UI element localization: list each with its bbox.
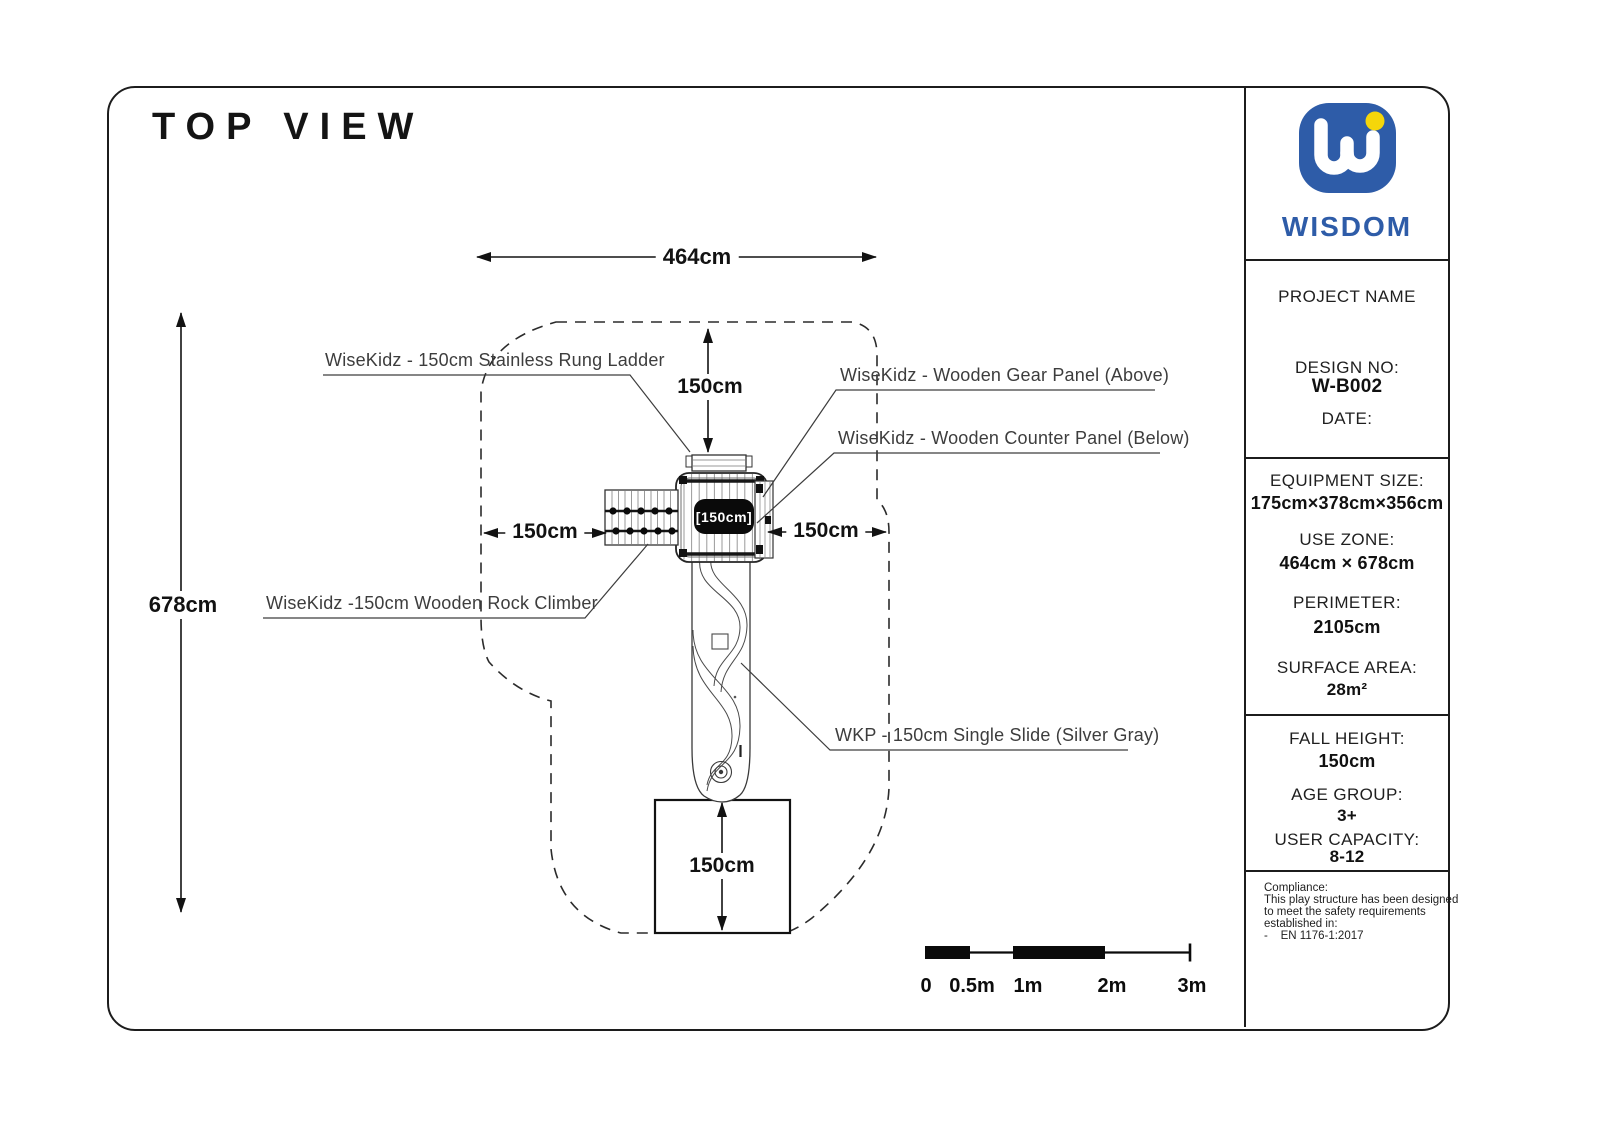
compliance-line-3: established in: <box>1264 918 1458 930</box>
surface-area-value: 28m² <box>1246 680 1448 700</box>
age-group-label: AGE GROUP: <box>1246 785 1448 805</box>
scale-tick-3m: 3m <box>1178 975 1207 998</box>
compliance-line-2: to meet the safety requirements <box>1264 906 1458 918</box>
compliance-line-1: This play structure has been designed <box>1264 894 1458 906</box>
perimeter-value: 2105cm <box>1246 617 1448 638</box>
date-label: DATE: <box>1246 409 1448 429</box>
surface-area-label: SURFACE AREA: <box>1246 658 1448 678</box>
dim-use-zone-height: 678cm <box>142 591 225 619</box>
label-gear-panel: WiseKidz - Wooden Gear Panel (Above) <box>840 365 1169 386</box>
label-counter-panel: WiseKidz - Wooden Counter Panel (Below) <box>838 428 1190 449</box>
compliance-heading: Compliance: <box>1264 882 1458 894</box>
scale-tick-2m: 2m <box>1098 975 1127 998</box>
wisdom-logo-icon <box>1246 93 1448 211</box>
brand-name: WISDOM <box>1246 211 1448 243</box>
panel-shapes <box>755 481 773 558</box>
dim-slide-exit: 150cm <box>682 853 761 879</box>
compliance-text: Compliance: This play structure has been… <box>1264 882 1458 942</box>
use-zone-label: USE ZONE: <box>1246 530 1448 550</box>
scale-tick-05m: 0.5m <box>949 975 995 998</box>
design-no-value: W-B002 <box>1246 376 1448 398</box>
title-block-size-section: EQUIPMENT SIZE: 175cm×378cm×356cm USE ZO… <box>1246 457 1448 716</box>
user-capacity-value: 8-12 <box>1246 847 1448 867</box>
project-name-label: PROJECT NAME <box>1246 287 1448 307</box>
dim-top-clearance: 150cm <box>670 374 749 400</box>
rock-climber-shape <box>605 490 678 545</box>
perimeter-label: PERIMETER: <box>1246 593 1448 613</box>
label-rung-ladder: WiseKidz - 150cm Stainless Rung Ladder <box>325 350 665 371</box>
blueprint-page: { "page": { "title": "TOP VIEW" }, "bran… <box>0 0 1600 1131</box>
compliance-line-4: - EN 1176-1:2017 <box>1264 930 1458 942</box>
scale-tick-1m: 1m <box>1014 975 1043 998</box>
title-block-compliance-section: Compliance: This play structure has been… <box>1246 870 1448 1029</box>
fall-height-value: 150cm <box>1246 751 1448 772</box>
top-view-drawing <box>107 86 1244 1029</box>
equipment-size-value: 175cm×378cm×356cm <box>1246 493 1448 514</box>
dim-right-clearance: 150cm <box>786 518 865 544</box>
rung-ladder-shape <box>686 455 752 471</box>
title-block-logo-section: WISDOM <box>1246 87 1448 259</box>
title-block-project-section: PROJECT NAME DESIGN NO: W-B002 DATE: <box>1246 259 1448 459</box>
equipment-size-label: EQUIPMENT SIZE: <box>1246 471 1448 491</box>
scale-tick-0: 0 <box>920 975 931 998</box>
use-zone-value: 464cm × 678cm <box>1246 553 1448 574</box>
fall-height-label: FALL HEIGHT: <box>1246 729 1448 749</box>
label-rock-climber: WiseKidz -150cm Wooden Rock Climber <box>266 593 598 614</box>
platform-height-badge: [150cm] <box>696 509 752 525</box>
age-group-value: 3+ <box>1246 806 1448 826</box>
title-block: WISDOM PROJECT NAME DESIGN NO: W-B002 DA… <box>1244 87 1448 1027</box>
design-no-label: DESIGN NO: <box>1246 358 1448 378</box>
slide-shape <box>692 556 750 802</box>
label-slide: WKP - 150cm Single Slide (Silver Gray) <box>835 725 1159 746</box>
scale-bar <box>925 944 1190 962</box>
title-block-safety-section: FALL HEIGHT: 150cm AGE GROUP: 3+ USER CA… <box>1246 714 1448 872</box>
dim-left-clearance: 150cm <box>505 519 584 545</box>
dim-use-zone-width: 464cm <box>656 243 739 271</box>
